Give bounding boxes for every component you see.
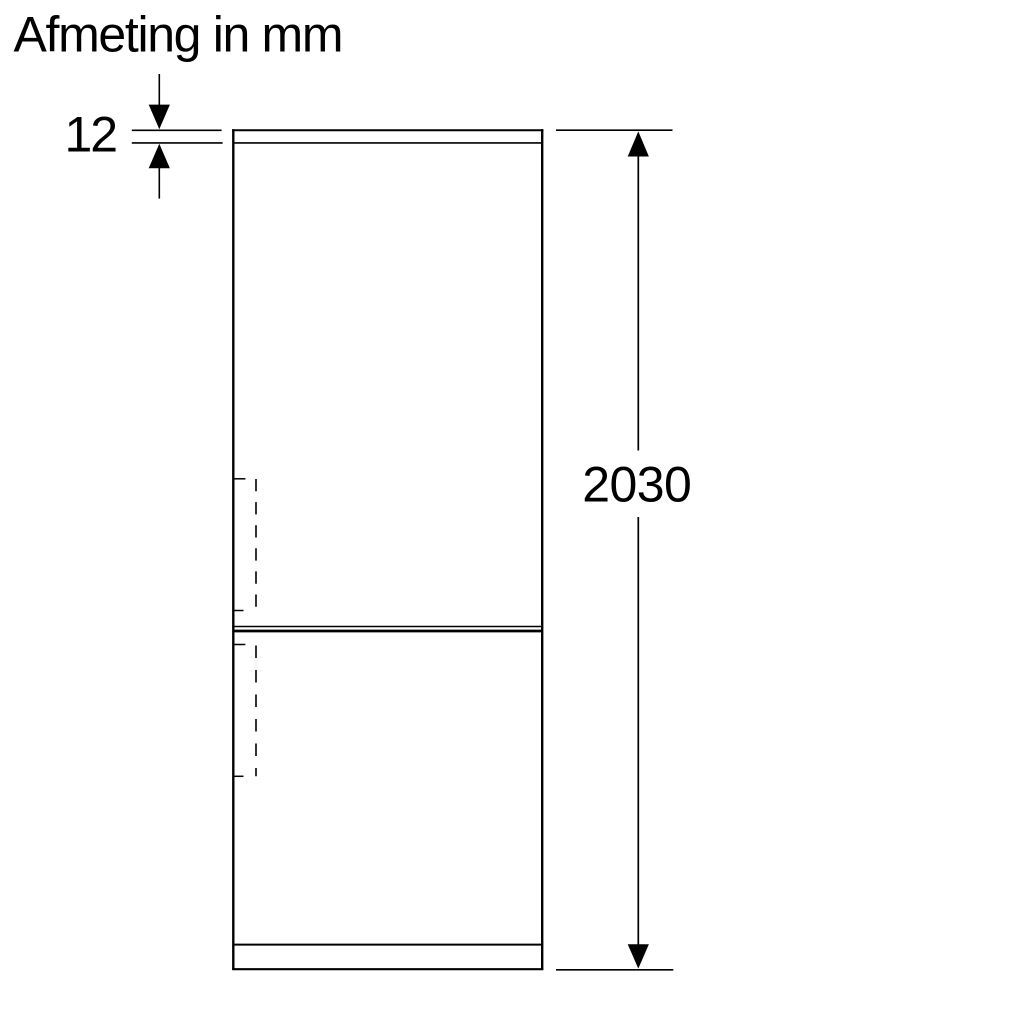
svg-text:12: 12 (65, 107, 119, 163)
svg-text:Afmeting in mm: Afmeting in mm (14, 7, 344, 63)
svg-text:2030: 2030 (582, 457, 692, 513)
